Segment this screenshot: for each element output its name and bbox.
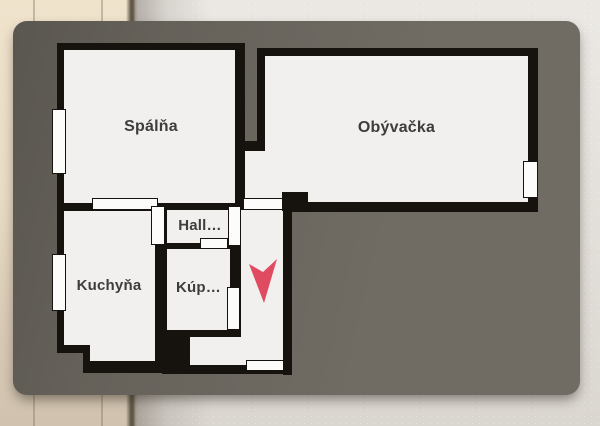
window-living [523, 161, 538, 198]
door-living-corridor [243, 198, 283, 210]
location-arrow-shape [249, 259, 277, 303]
room-label-obyvacka: Obývačka [265, 119, 528, 137]
room-label-spalna: Spálňa [57, 118, 245, 136]
wall-segment [283, 195, 292, 375]
floor-plan-screenshot: Spálňa Obývačka Kuchyňa Hall… Kúp… [0, 0, 600, 426]
room-label-kuchyna: Kuchyňa [57, 277, 161, 294]
door-hall-bathroom [200, 238, 228, 249]
location-arrow-icon[interactable] [246, 257, 280, 305]
wall-segment [282, 192, 308, 211]
floor-plan-card: Spálňa Obývačka Kuchyňa Hall… Kúp… [13, 21, 580, 395]
door-entry [246, 360, 284, 371]
door-bedroom [92, 198, 158, 210]
room-label-kupelna: Kúp… [167, 279, 230, 296]
floor-plan: Spálňa Obývačka Kuchyňa Hall… Kúp… [0, 0, 600, 426]
room-label-hall: Hall… [167, 217, 233, 234]
room-kuchyna-floor[interactable] [90, 345, 155, 361]
door-kitchen-hall [151, 206, 165, 245]
room-obyvacka-floor[interactable] [245, 151, 266, 202]
